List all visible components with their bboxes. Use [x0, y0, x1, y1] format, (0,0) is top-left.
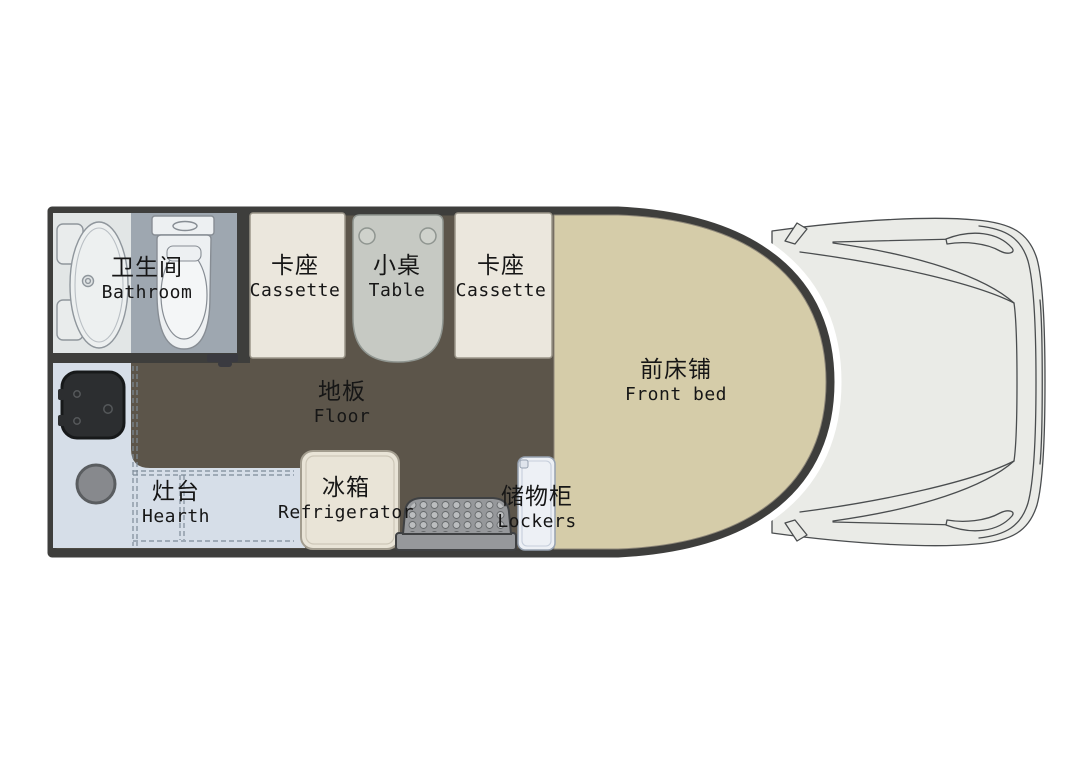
cassette-front-seat: [250, 213, 345, 358]
cassette-rear-seat: [455, 213, 552, 358]
lockers-cabinet: [518, 457, 555, 550]
kitchen-sink: [58, 372, 124, 438]
stove-burner: [77, 465, 115, 503]
floorplan-drawing: [0, 0, 1080, 764]
cup-holder-right: [420, 228, 436, 244]
bathroom-wall-divider: [237, 211, 250, 359]
floorplan-canvas: 卫生间 Bathroom 卡座 Cassette 小桌 Table 卡座 Cas…: [0, 0, 1080, 764]
entry-step: [396, 498, 516, 550]
refrigerator-unit: [301, 451, 399, 549]
toilet-seat-hinge: [167, 246, 201, 261]
cup-holder-left: [359, 228, 375, 244]
toilet-tank: [152, 216, 214, 235]
toilet-seat: [161, 251, 207, 339]
shower-drain: [83, 276, 94, 287]
toilet: [152, 216, 214, 349]
